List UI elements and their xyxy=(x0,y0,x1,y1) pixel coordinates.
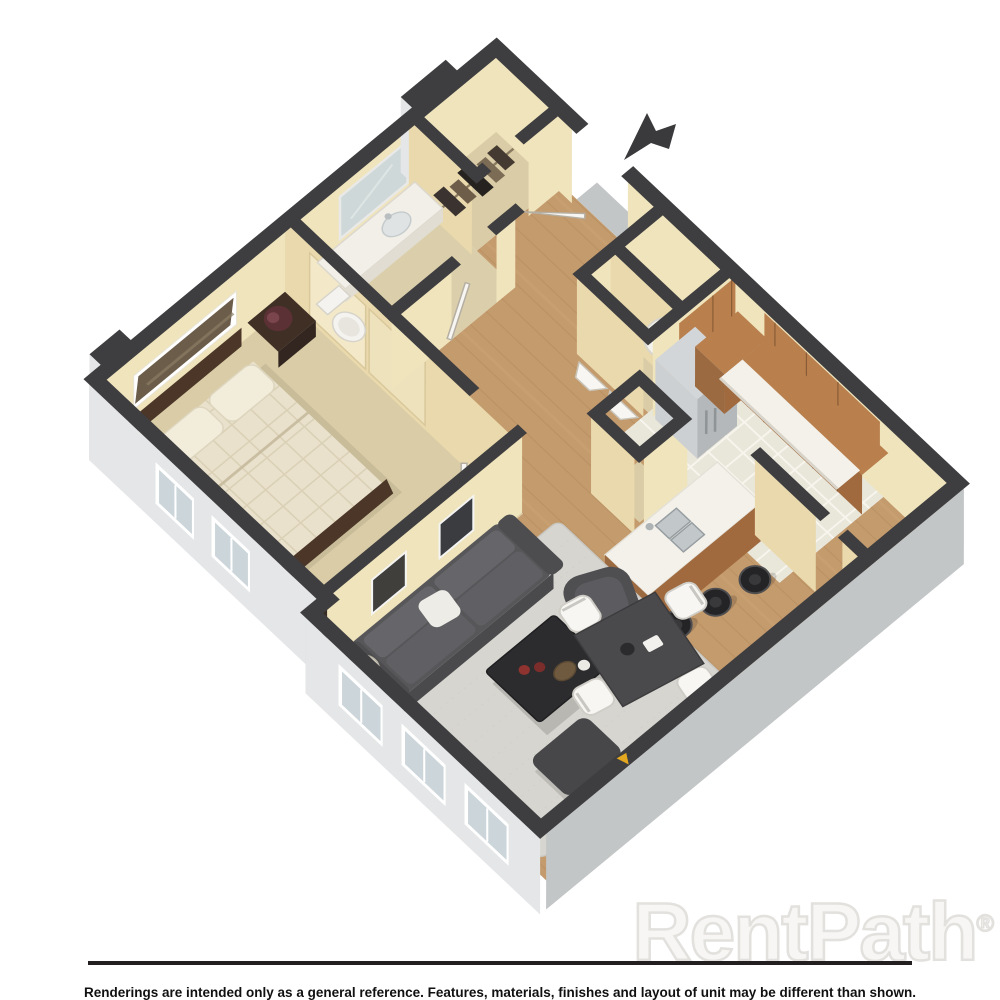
page: RentPath® Renderings are intended only a… xyxy=(0,0,1000,1000)
rentpath-watermark: RentPath® xyxy=(632,886,992,980)
disclaimer-text: Renderings are intended only as a genera… xyxy=(0,985,1000,1000)
floorplan-render xyxy=(0,0,1000,1000)
registered-mark: ® xyxy=(976,911,992,938)
entry-arrow-icon xyxy=(624,113,676,160)
footer-divider xyxy=(88,961,912,965)
